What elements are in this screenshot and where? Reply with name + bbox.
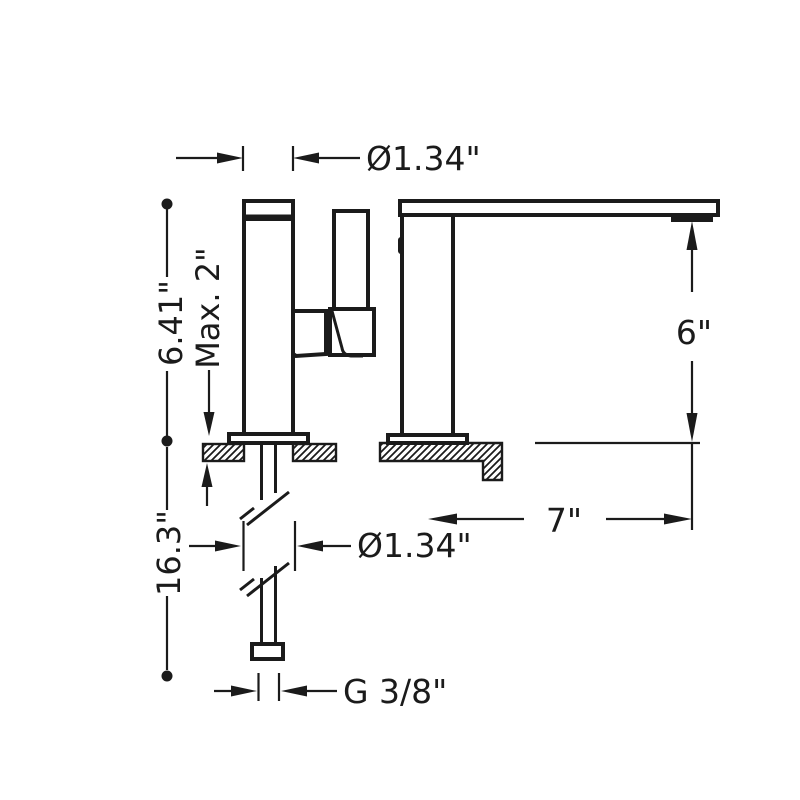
label-spout-reach: 7" — [546, 501, 582, 540]
label-spout-height: 6" — [676, 313, 712, 352]
dim-dot-bottom — [162, 671, 173, 682]
base-plate-front — [229, 434, 308, 443]
spout-arm — [400, 201, 718, 215]
handle-lever — [334, 211, 368, 312]
countertop-right-section — [293, 444, 336, 461]
handle-side-profile — [398, 237, 404, 254]
dim-dot-middle — [162, 436, 173, 447]
label-total-depth: 16.3" — [150, 510, 188, 596]
body-top-band — [246, 215, 291, 222]
label-body-diameter: Ø1.34" — [366, 139, 481, 178]
aerator-tip — [671, 215, 713, 222]
faucet-body-side — [402, 210, 453, 436]
label-shank-diameter: Ø1.34" — [357, 526, 472, 565]
label-total-height: 6.41" — [152, 280, 190, 366]
countertop-left-section — [203, 444, 244, 461]
faucet-technical-drawing: Ø1.34" 6.41" Max. 2" 16.3" 6" 7" — [0, 0, 800, 800]
faucet-body-column — [244, 201, 293, 437]
label-supply-thread: G 3/8" — [343, 672, 447, 711]
supply-fitting — [252, 644, 283, 659]
label-max-deck: Max. 2" — [189, 247, 227, 369]
